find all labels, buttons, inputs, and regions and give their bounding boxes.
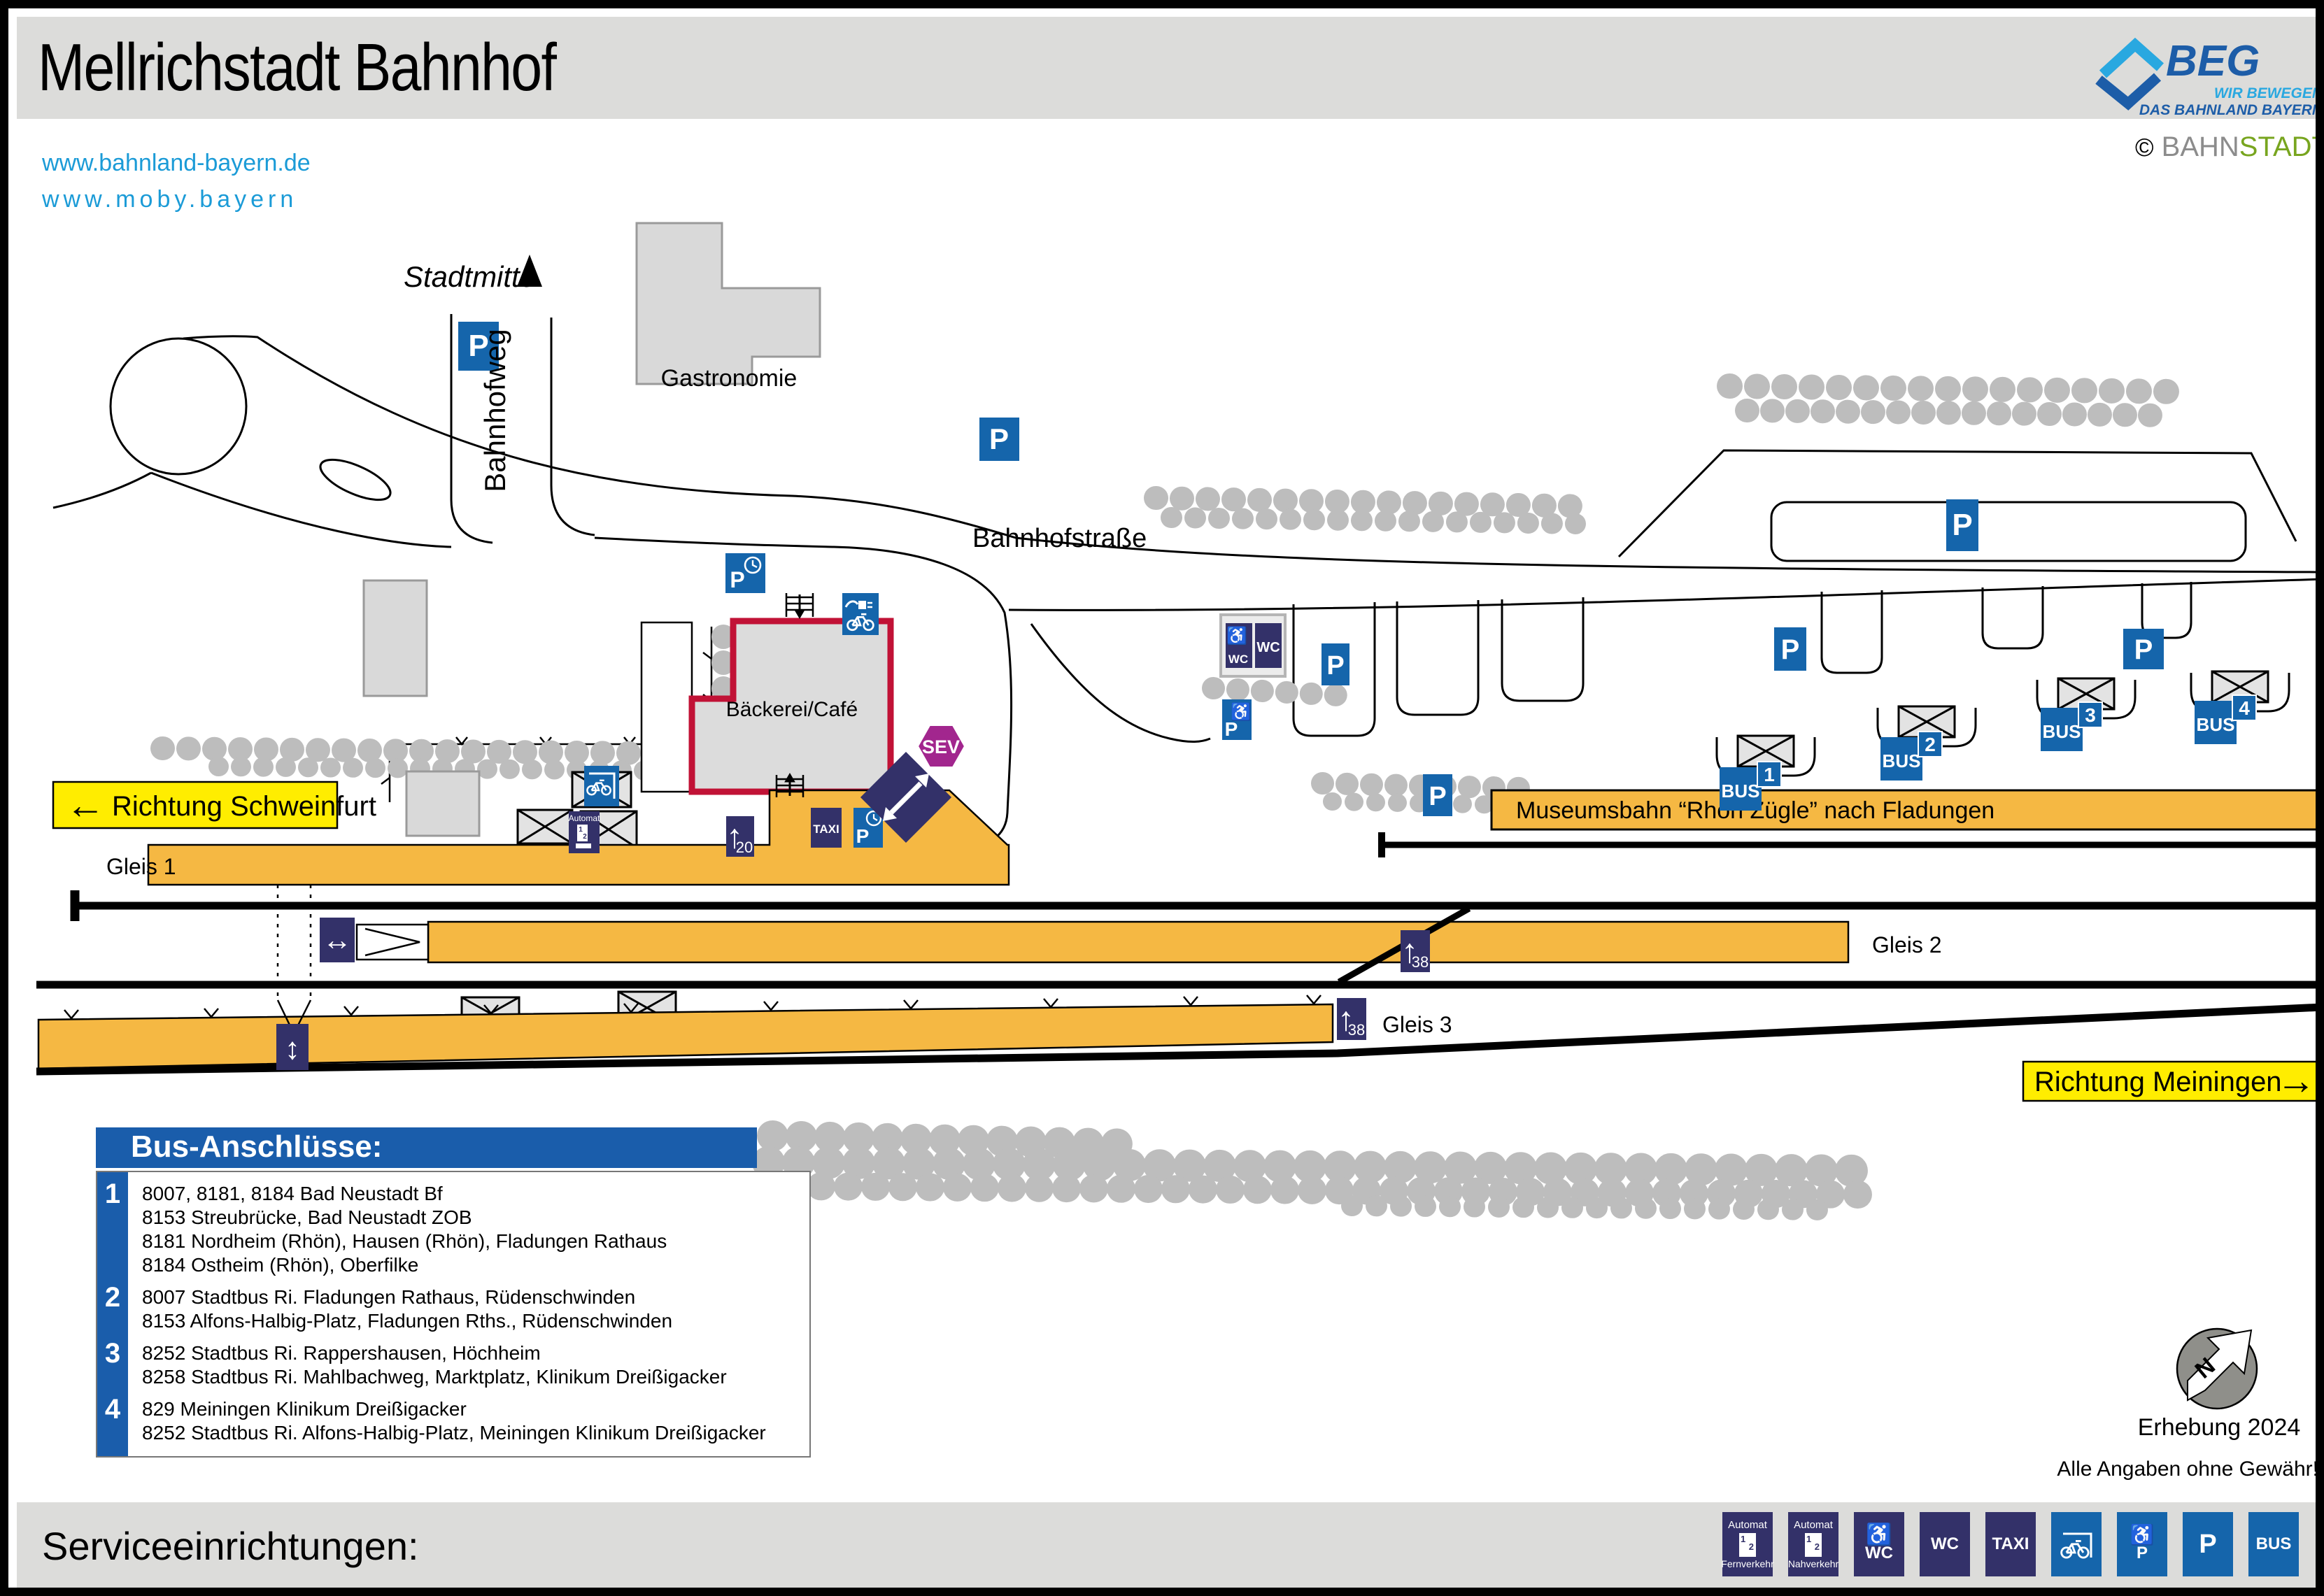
beg-tagline-1: WIR BEWEGEN: [2214, 85, 2323, 102]
direction-sign-schweinfurt: ← Richtung Schweinfurt: [53, 782, 376, 828]
bus-line: 8007 Stadtbus Ri. Fladungen Rathaus, Rüd…: [142, 1285, 802, 1309]
shelter-box: [518, 810, 572, 843]
bus-legend-title: Bus-Anschlüsse:: [96, 1127, 757, 1168]
ebike-charging-icon: [842, 593, 879, 635]
parking-icon: P: [1774, 627, 1806, 671]
gleis3-label: Gleis 3: [1382, 1012, 1452, 1037]
svg-text:38: 38: [1348, 1021, 1365, 1039]
svg-text:P: P: [1781, 634, 1800, 665]
bahnstadt-credit: © BAHNSTADT: [2135, 131, 2318, 163]
bus-stop-sign: BUS 3: [2041, 702, 2102, 751]
bus-icon: BUS: [2248, 1512, 2299, 1576]
wheelchair-icon: ♿: [1866, 1526, 1892, 1544]
taxi-icon: TAXI: [1985, 1512, 2036, 1576]
svg-text:↔: ↔: [323, 923, 352, 956]
bahnhofstrasse-lower-edge-left: [151, 473, 451, 547]
parking-icon: P: [2123, 629, 2164, 669]
bus-legend-row: 4 829 Meiningen Klinikum Dreißigacker 82…: [97, 1393, 809, 1449]
level-access-icon: ↔: [320, 918, 355, 962]
bus-stop-number: 2: [97, 1285, 128, 1309]
wc-access-road: [1031, 624, 1210, 742]
svg-text:2: 2: [583, 833, 587, 841]
platform-ramp: [357, 925, 428, 960]
building: [406, 771, 479, 836]
parking-top-edge: [1009, 579, 2324, 610]
bus-legend-row: 1 8007, 8181, 8184 Bad Neustadt Bf 8153 …: [97, 1178, 809, 1281]
svg-text:BUS: BUS: [2043, 721, 2081, 742]
parking-icon: P: [1322, 643, 1349, 685]
traffic-island: [316, 452, 396, 508]
svg-text:WC: WC: [1256, 640, 1280, 655]
bus-connections-legend: Bus-Anschlüsse: 1 8007, 8181, 8184 Bad N…: [96, 1127, 811, 1458]
platform-height-icon: ↑ 38: [1401, 930, 1430, 972]
bahnhofweg-right-edge: [551, 318, 595, 535]
svg-text:WC: WC: [1228, 653, 1248, 666]
svg-text:SEV: SEV: [922, 736, 960, 757]
bus-line: 8181 Nordheim (Rhön), Hausen (Rhön), Fla…: [142, 1230, 802, 1253]
svg-text:BUS: BUS: [1722, 781, 1760, 801]
bus-line: 8252 Stadtbus Ri. Alfons-Halbig-Platz, M…: [142, 1421, 802, 1445]
bus-stop-sign: BUS 4: [2195, 695, 2256, 744]
wheelchair-icon: ♿: [1231, 702, 1252, 722]
wc-icon: WC: [1920, 1512, 1970, 1576]
ticket-machine-icon: Automat 1 2: [569, 811, 600, 853]
svg-text:1: 1: [1764, 764, 1775, 785]
gastronomie-building: [637, 223, 820, 384]
sev-icon: SEV: [918, 725, 965, 767]
parking-bay: [1983, 586, 2043, 648]
bike-parking-icon: [2051, 1512, 2102, 1576]
svg-text:38: 38: [1412, 953, 1429, 971]
wheelchair-icon: ♿: [2130, 1526, 2155, 1544]
accessible-parking-icon: P ♿: [1222, 699, 1252, 740]
svg-text:P: P: [730, 567, 744, 592]
link-moby-bayern[interactable]: www.moby.bayern: [42, 181, 311, 218]
ticket-machine-local-icon: Automat 12 Nahverkehr: [1788, 1512, 1838, 1576]
parking-bay: [1397, 600, 1478, 715]
bahnhofstrasse-label: Bahnhofstraße: [972, 524, 1147, 553]
gleis2-label: Gleis 2: [1872, 932, 1942, 957]
building: [364, 580, 427, 696]
parking-icon: P: [1423, 774, 1452, 816]
svg-text:3: 3: [2085, 704, 2096, 726]
bahnhofweg-label: Bahnhofweg: [479, 329, 511, 492]
road-stub-southwest: [53, 473, 151, 508]
compass: N: [2177, 1329, 2257, 1409]
svg-text:↕: ↕: [285, 1032, 300, 1066]
wheelchair-icon: ♿: [1226, 626, 1247, 646]
bus-line: 8153 Streubrücke, Bad Neustadt ZOB: [142, 1206, 802, 1230]
bus-line: 829 Meiningen Klinikum Dreißigacker: [142, 1397, 802, 1421]
parking-icon: P: [979, 418, 1019, 461]
baeckerei-label: Bäckerei/Café: [726, 698, 858, 721]
bus-legend-row: 2 8007 Stadtbus Ri. Fladungen Rathaus, R…: [97, 1281, 809, 1337]
parking-time-limit-icon: P: [725, 553, 765, 593]
parking-bay: [1822, 590, 1882, 673]
accessible-parking-icon: ♿ P: [2117, 1512, 2167, 1576]
bike-parking-icon: [584, 766, 619, 806]
website-links: www.bahnland-bayern.de www.moby.bayern: [42, 145, 311, 218]
svg-text:4: 4: [2239, 697, 2250, 719]
page-title: Mellrichstadt Bahnhof: [38, 29, 555, 106]
direction-sign-meiningen: Richtung Meiningen →: [2023, 1058, 2324, 1102]
bus-line: 8258 Stadtbus Ri. Mahlbachweg, Marktplat…: [142, 1365, 802, 1389]
svg-text:BUS: BUS: [2197, 714, 2235, 735]
beg-wordmark: BEG: [2166, 36, 2260, 86]
beg-logo: BEG WIR BEWEGEN DAS BAHNLAND BAYERN: [2088, 31, 2324, 122]
beg-tagline-2: DAS BAHNLAND BAYERN: [2139, 102, 2323, 119]
svg-text:P: P: [856, 825, 870, 847]
gleis1-label: Gleis 1: [106, 854, 176, 879]
bus-line: 8007, 8181, 8184 Bad Neustadt Bf: [142, 1182, 802, 1206]
service-facilities-title: Serviceeinrichtungen:: [42, 1523, 419, 1569]
bus-stop-sign: BUS 2: [1880, 732, 1942, 781]
svg-text:P: P: [1952, 508, 1972, 542]
parking-bay: [1502, 597, 1583, 701]
svg-text:20: 20: [736, 839, 753, 856]
footer-bar: Serviceeinrichtungen: Automat 12 Fernver…: [17, 1502, 2324, 1596]
bus-stop-number: 3: [97, 1341, 128, 1365]
copyright-icon: ©: [2135, 133, 2154, 162]
bus-legend-row: 3 8252 Stadtbus Ri. Rappershausen, Höchh…: [97, 1337, 809, 1393]
museumsbahn-banner: Museumsbahn “Rhön Zügle” nach Fladungen: [1492, 790, 2323, 829]
svg-text:TAXI: TAXI: [813, 822, 839, 836]
track-crossing-icon: ↕: [276, 1024, 309, 1070]
svg-text:P: P: [989, 422, 1009, 455]
station-map-page: ♿ WC WC: [0, 0, 2324, 1596]
svg-text:Automat: Automat: [569, 813, 600, 823]
svg-text:P: P: [1429, 782, 1446, 811]
accessible-wc-icon: ♿ WC: [1854, 1512, 1904, 1576]
disclaimer-note: Alle Angaben ohne Gewähr!: [2057, 1458, 2318, 1481]
roundabout: [111, 339, 246, 474]
svg-text:2: 2: [1925, 734, 1936, 755]
svg-text:→: →: [2276, 1058, 2316, 1102]
parking-icon: P: [2183, 1512, 2233, 1576]
svg-text:BUS: BUS: [1883, 750, 1921, 771]
stairs-icon: [786, 593, 813, 618]
bus-line: 8153 Alfons-Halbig-Platz, Fladungen Rths…: [142, 1309, 802, 1333]
survey-note: Erhebung 2024: [2138, 1414, 2301, 1441]
link-bahnland-bayern[interactable]: www.bahnland-bayern.de: [42, 145, 311, 181]
station-annex: [642, 622, 692, 792]
header-bar: Mellrichstadt Bahnhof BEG WIR BEWEGEN DA…: [17, 17, 2324, 119]
bus-line: 8184 Ostheim (Rhön), Oberfilke: [142, 1253, 802, 1277]
taxi-icon: TAXI: [811, 808, 842, 848]
parking-icon: P: [1946, 499, 1978, 551]
bus-line: 8252 Stadtbus Ri. Rappershausen, Höchhei…: [142, 1341, 802, 1365]
ticket-machine-longdistance-icon: Automat 12 Fernverkehr: [1722, 1512, 1773, 1576]
svg-text:P: P: [1326, 651, 1344, 681]
platform-height-icon: ↑ 38: [1337, 998, 1366, 1040]
platform-gleis-2: [428, 922, 1848, 962]
bus-stop-number: 4: [97, 1397, 128, 1421]
svg-text:Richtung Meiningen: Richtung Meiningen: [2034, 1067, 2282, 1097]
gastronomie-label: Gastronomie: [661, 365, 798, 392]
bus-stop-number: 1: [97, 1182, 128, 1206]
platform-height-icon: ↑ 20: [726, 816, 754, 857]
svg-text:Richtung Schweinfurt: Richtung Schweinfurt: [112, 791, 376, 822]
wc-building: ♿ WC WC: [1221, 615, 1285, 676]
north-parking-island: [1771, 502, 2246, 561]
svg-text:P: P: [2134, 634, 2153, 665]
stadtmitte-label: Stadtmitte: [404, 260, 536, 293]
service-icons: Automat 12 Fernverkehr Automat 12 Nahver…: [1722, 1512, 2299, 1576]
svg-text:←: ←: [66, 783, 105, 827]
